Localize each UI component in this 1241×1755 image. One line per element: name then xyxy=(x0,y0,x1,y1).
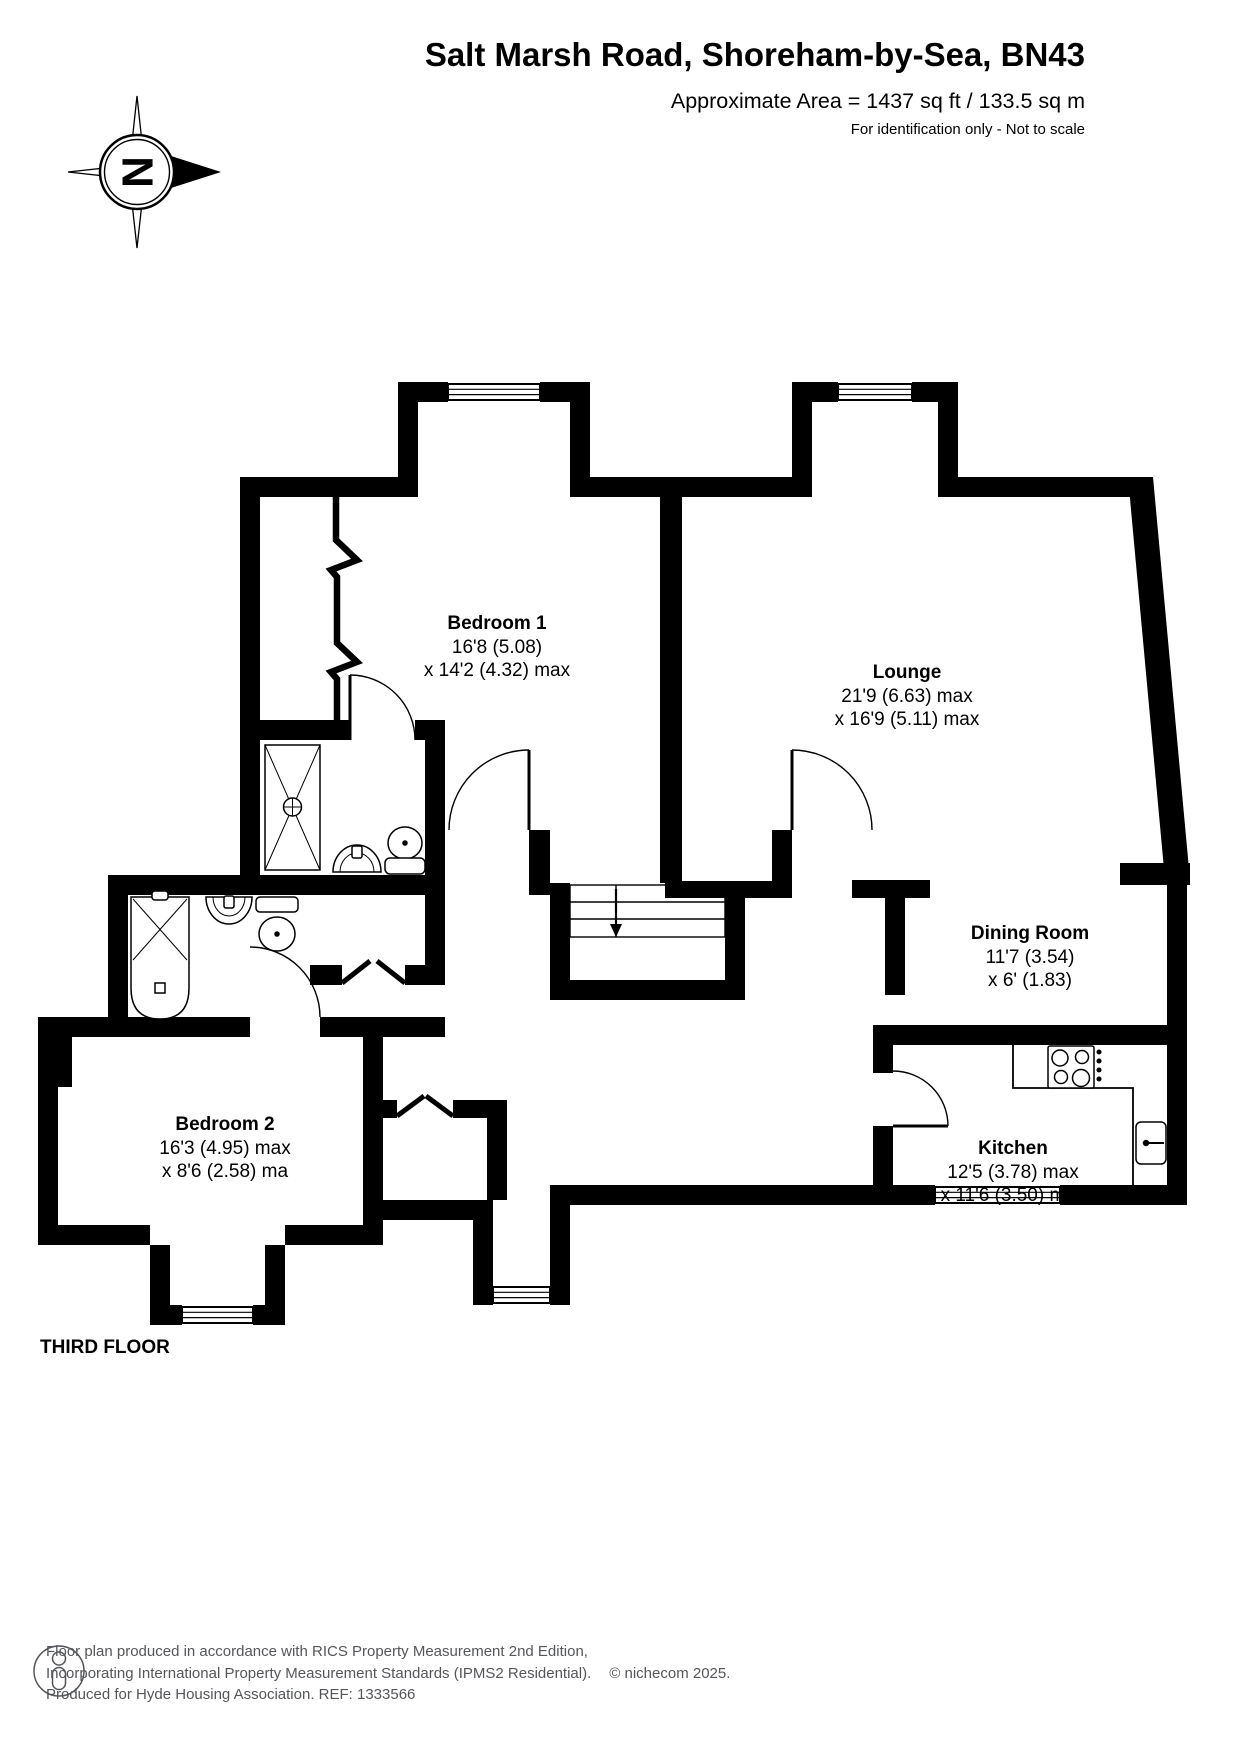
scale-disclaimer: For identification only - Not to scale xyxy=(425,121,1085,138)
sink-icon xyxy=(333,845,381,872)
door-arc xyxy=(893,1071,948,1126)
footer-line-1: Floor plan produced in accordance with R… xyxy=(46,1641,730,1663)
room-dimensions: 12'5 (3.78) max xyxy=(883,1161,1143,1185)
double-doors xyxy=(342,961,405,983)
room-name: Dining Room xyxy=(900,922,1160,946)
person-icon xyxy=(32,1641,88,1701)
header: Salt Marsh Road, Shoreham-by-Sea, BN43 A… xyxy=(425,36,1085,138)
door-arc xyxy=(250,947,320,1017)
room-name: Kitchen xyxy=(883,1137,1143,1161)
sink-icon xyxy=(206,896,252,924)
room-dimensions: 21'9 (6.63) max xyxy=(777,685,1037,709)
window xyxy=(182,1307,253,1323)
room-label-dining-room: Dining Room 11'7 (3.54) x 6' (1.83) xyxy=(900,922,1160,993)
double-doors xyxy=(397,1096,453,1116)
floor-label: THIRD FLOOR xyxy=(40,1337,170,1359)
room-name: Lounge xyxy=(777,661,1037,685)
shower-icon xyxy=(265,745,320,870)
room-dimensions: 16'8 (5.08) xyxy=(367,636,627,660)
doors xyxy=(250,675,948,1126)
door-arc xyxy=(350,675,415,740)
room-label-kitchen: Kitchen 12'5 (3.78) max x 11'6 (3.50) ma… xyxy=(883,1137,1143,1208)
footer-line-2: Incorporating International Property Mea… xyxy=(46,1663,730,1685)
toilet-icon xyxy=(385,827,425,874)
page-title: Salt Marsh Road, Shoreham-by-Sea, BN43 xyxy=(425,36,1085,74)
window xyxy=(493,1287,550,1303)
room-dimensions: x 14'2 (4.32) max xyxy=(367,659,627,683)
door-arc xyxy=(449,750,529,830)
room-label-bedroom-1: Bedroom 1 16'8 (5.08) x 14'2 (4.32) max xyxy=(367,612,627,683)
room-name: Bedroom 2 xyxy=(95,1113,355,1137)
window xyxy=(448,384,540,400)
room-dimensions: x 16'9 (5.11) max xyxy=(777,708,1037,732)
room-label-bedroom-2: Bedroom 2 16'3 (4.95) max x 8'6 (2.58) m… xyxy=(95,1113,355,1184)
room-dimensions: 11'7 (3.54) xyxy=(900,946,1160,970)
wardrobe-zigzag xyxy=(331,497,357,735)
footer-line-3: Produced for Hyde Housing Association. R… xyxy=(46,1684,730,1706)
room-dimensions: x 6' (1.83) xyxy=(900,969,1160,993)
window xyxy=(838,384,912,400)
room-dimensions: x 8'6 (2.58) ma xyxy=(95,1160,355,1184)
room-name: Bedroom 1 xyxy=(367,612,627,636)
compass-icon: N xyxy=(68,96,221,248)
room-dimensions: x 11'6 (3.50) max xyxy=(883,1184,1143,1208)
approximate-area: Approximate Area = 1437 sq ft / 133.5 sq… xyxy=(425,89,1085,114)
bath-icon xyxy=(131,891,189,1019)
door-arc xyxy=(792,750,872,830)
hob-icon xyxy=(1048,1046,1101,1088)
stairs-down-arrow xyxy=(610,889,622,937)
footer: Floor plan produced in accordance with R… xyxy=(32,1641,730,1706)
room-label-lounge: Lounge 21'9 (6.63) max x 16'9 (5.11) max xyxy=(777,661,1037,732)
floor-plan: N xyxy=(0,0,1241,1755)
compass-north-label: N xyxy=(113,156,162,188)
copyright: © nichecom 2025. xyxy=(609,1665,730,1682)
toilet-icon xyxy=(256,897,298,951)
footer-text: Floor plan produced in accordance with R… xyxy=(46,1641,730,1706)
room-dimensions: 16'3 (4.95) max xyxy=(95,1137,355,1161)
